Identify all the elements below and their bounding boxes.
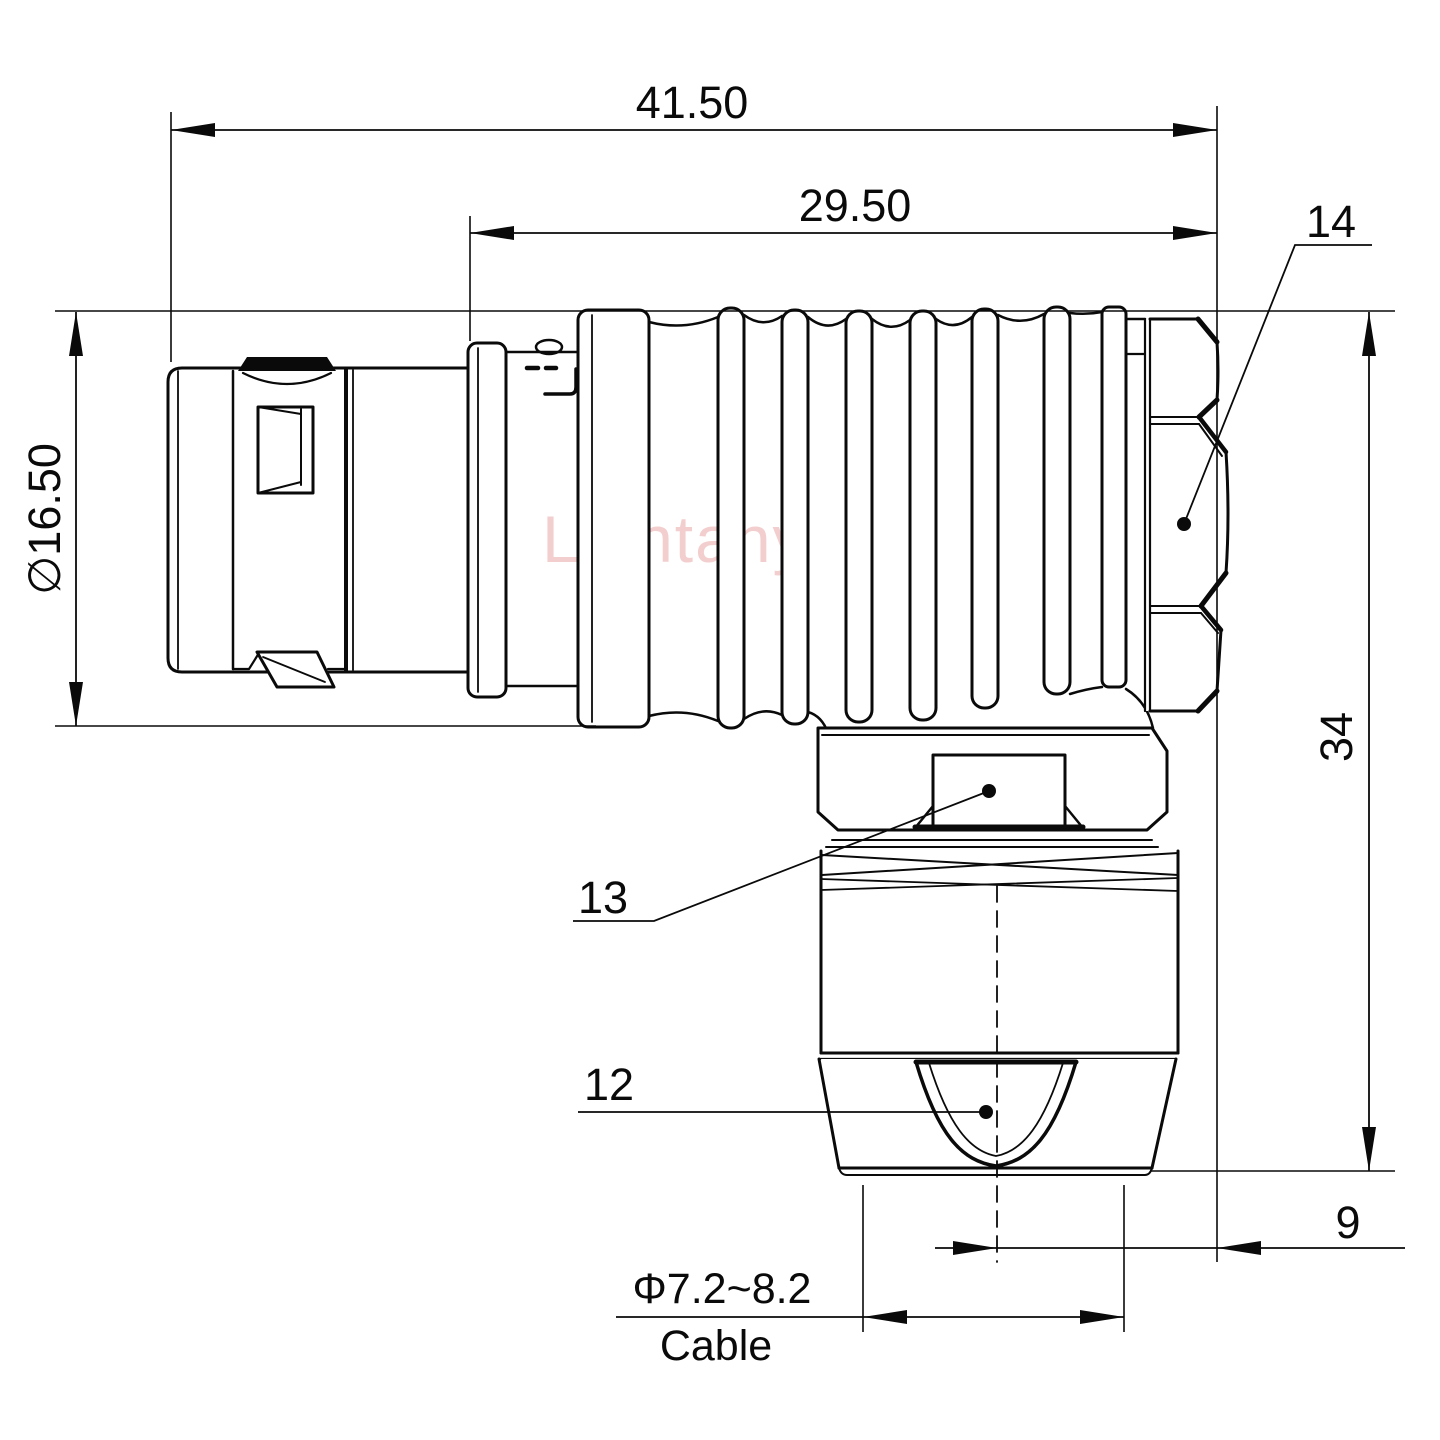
sleeve-top-notch — [238, 357, 336, 371]
wrench-flat-collar — [818, 728, 1167, 830]
dim-cable-word: Cable — [660, 1322, 772, 1370]
leader-dot-13 — [982, 784, 996, 798]
label-wrench-flats: 13 — [578, 872, 628, 923]
dim-cable-range: Φ7.2~8.2 — [633, 1265, 812, 1313]
dimension-texts: 41.50 29.50 ∅16.50 34 9 Φ7.2~8.2 Cable 1… — [19, 77, 1362, 1370]
key-window — [258, 407, 313, 493]
label-cable-gland: 12 — [584, 1059, 634, 1110]
retaining-spring-band — [821, 840, 1178, 891]
dim-axis-to-face: 9 — [1335, 1197, 1360, 1248]
shell-ring-front — [468, 343, 506, 697]
label-coupling-nut: 14 — [1306, 196, 1356, 247]
dim-shell-diameter: ∅16.50 — [19, 443, 70, 595]
boot-end-ring — [1102, 307, 1145, 687]
dim-overall-length: 41.50 — [636, 77, 749, 128]
connector-body — [168, 307, 1228, 1262]
bayonet-sleeve — [233, 357, 353, 687]
strain-barrel — [819, 851, 1178, 1059]
leader-dot-14 — [1177, 517, 1191, 531]
technical-drawing-page: Lightany — [0, 0, 1440, 1440]
wrench-flat-face — [933, 755, 1065, 826]
shell-flange-ring — [578, 310, 649, 727]
leader-dot-12 — [979, 1105, 993, 1119]
bayonet-tab — [233, 652, 346, 687]
brand-engraving-logo-mark — [527, 340, 576, 394]
dim-rear-section-length: 29.50 — [799, 180, 912, 231]
plug-barrel — [168, 368, 468, 672]
connector-elbow-drawing: Lightany — [0, 0, 1440, 1440]
dim-elbow-height: 34 — [1311, 712, 1362, 762]
coupling-nut — [1145, 319, 1228, 711]
